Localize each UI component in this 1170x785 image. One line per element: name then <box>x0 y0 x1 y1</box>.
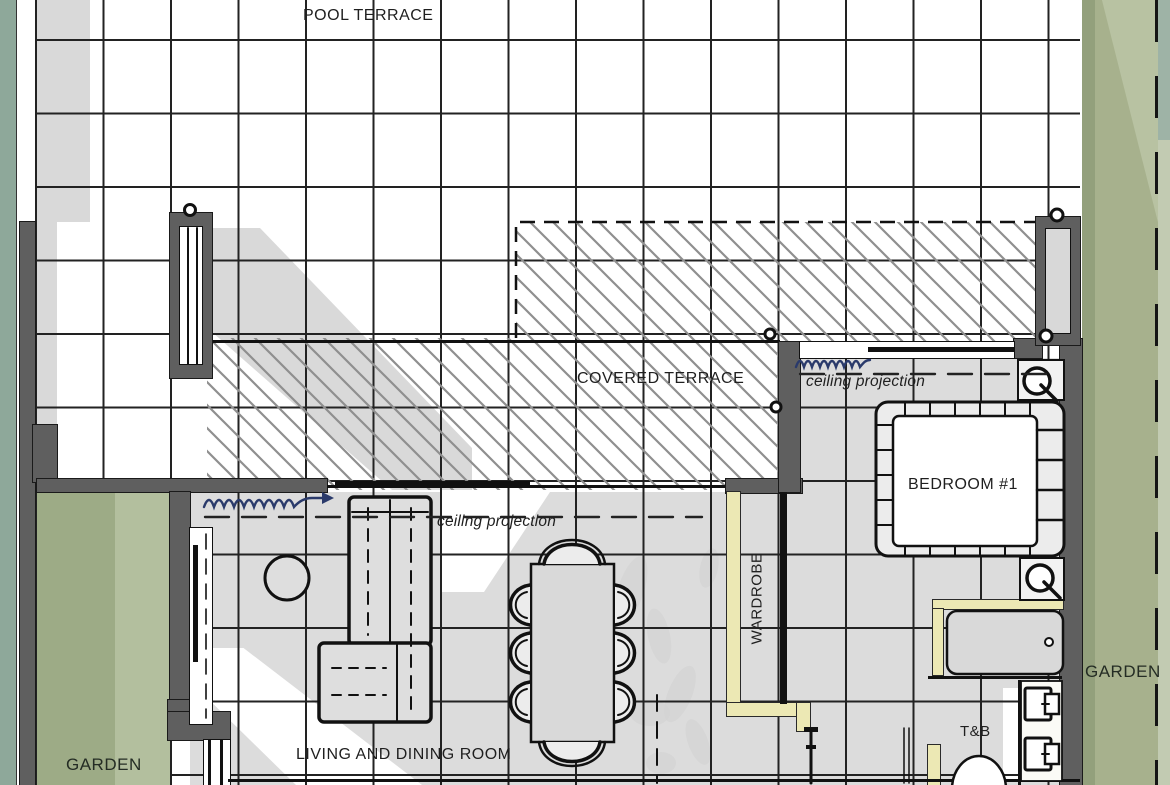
furniture-layer <box>0 0 1170 785</box>
insulation-squiggle-icon <box>204 360 870 507</box>
sofa-icon <box>319 497 431 722</box>
label-covered-terrace: COVERED TERRACE <box>577 370 744 388</box>
bathtub-icon <box>947 611 1063 674</box>
label-toilet-bath: T&B <box>960 723 991 740</box>
sink-icon <box>1021 681 1062 781</box>
toilet-icon <box>952 756 1006 785</box>
side-table-icon <box>265 556 309 600</box>
label-pool-terrace: POOL TERRACE <box>303 7 433 25</box>
label-living-dining: LIVING AND DINING ROOM <box>296 746 511 764</box>
door-icon <box>804 727 909 783</box>
label-ceiling-projection-bedroom: ceiling projection <box>806 373 925 391</box>
column-glazing-lines <box>188 228 197 364</box>
label-ceiling-projection-living: ceiling projection <box>437 513 556 531</box>
label-bedroom-1: BEDROOM #1 <box>908 476 1018 494</box>
floor-plan-canvas: POOL TERRACE COVERED TERRACE ceiling pro… <box>0 0 1170 785</box>
label-garden-right: GARDEN <box>1085 662 1161 682</box>
dining-table-icon <box>531 564 614 742</box>
label-garden-left: GARDEN <box>66 755 142 775</box>
label-wardrobe: WARDROBE <box>749 539 766 659</box>
